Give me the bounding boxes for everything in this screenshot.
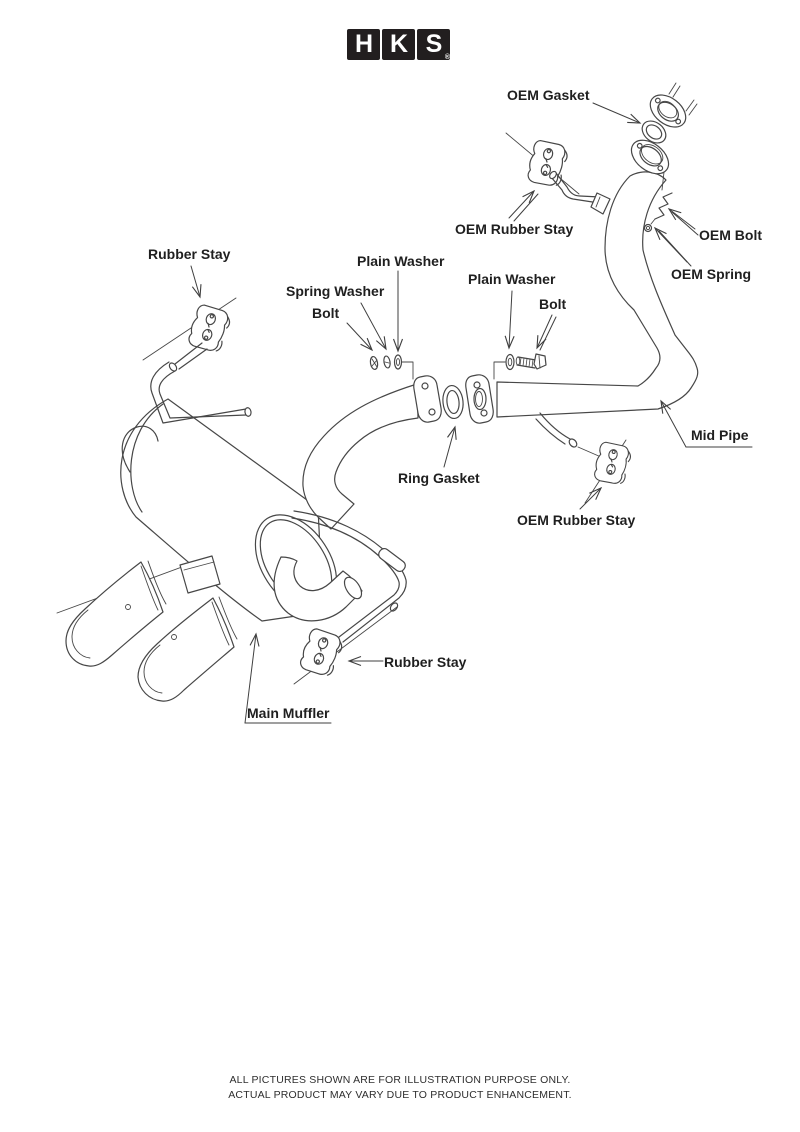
label-rubber-stay-left: Rubber Stay xyxy=(148,246,230,262)
label-mid-pipe: Mid Pipe xyxy=(691,427,749,443)
oem-rubber-stay-bottom-drawing xyxy=(536,413,633,503)
label-oem-rubber-stay-bottom: OEM Rubber Stay xyxy=(517,512,635,528)
catalog-page: H K S® xyxy=(0,0,800,1132)
disclaimer-line-1: ALL PICTURES SHOWN ARE FOR ILLUSTRATION … xyxy=(0,1073,800,1088)
exhaust-system-diagram xyxy=(0,0,800,1132)
label-oem-rubber-stay-top: OEM Rubber Stay xyxy=(455,221,573,237)
label-plain-washer-right: Plain Washer xyxy=(468,271,555,287)
label-ring-gasket: Ring Gasket xyxy=(398,470,480,486)
label-oem-spring: OEM Spring xyxy=(671,266,751,282)
disclaimer: ALL PICTURES SHOWN ARE FOR ILLUSTRATION … xyxy=(0,1073,800,1103)
label-rubber-stay-bottom: Rubber Stay xyxy=(384,654,466,670)
rubber-stay-left-drawing xyxy=(143,298,236,360)
label-plain-washer-left: Plain Washer xyxy=(357,253,444,269)
bolt-washer-set-right-drawing xyxy=(506,354,546,370)
tailpipe-drawing xyxy=(303,384,418,529)
label-bolt-right: Bolt xyxy=(539,296,566,312)
label-oem-gasket: OEM Gasket xyxy=(507,87,589,103)
oem-rubber-stay-top-drawing xyxy=(506,133,610,214)
ring-gasket-drawing xyxy=(441,385,464,420)
label-main-muffler: Main Muffler xyxy=(247,705,329,721)
label-oem-bolt: OEM Bolt xyxy=(699,227,762,243)
bolt-washer-set-left-drawing xyxy=(369,355,401,370)
label-bolt-left: Bolt xyxy=(312,305,339,321)
disclaimer-line-2: ACTUAL PRODUCT MAY VARY DUE TO PRODUCT E… xyxy=(0,1088,800,1103)
label-spring-washer: Spring Washer xyxy=(286,283,384,299)
